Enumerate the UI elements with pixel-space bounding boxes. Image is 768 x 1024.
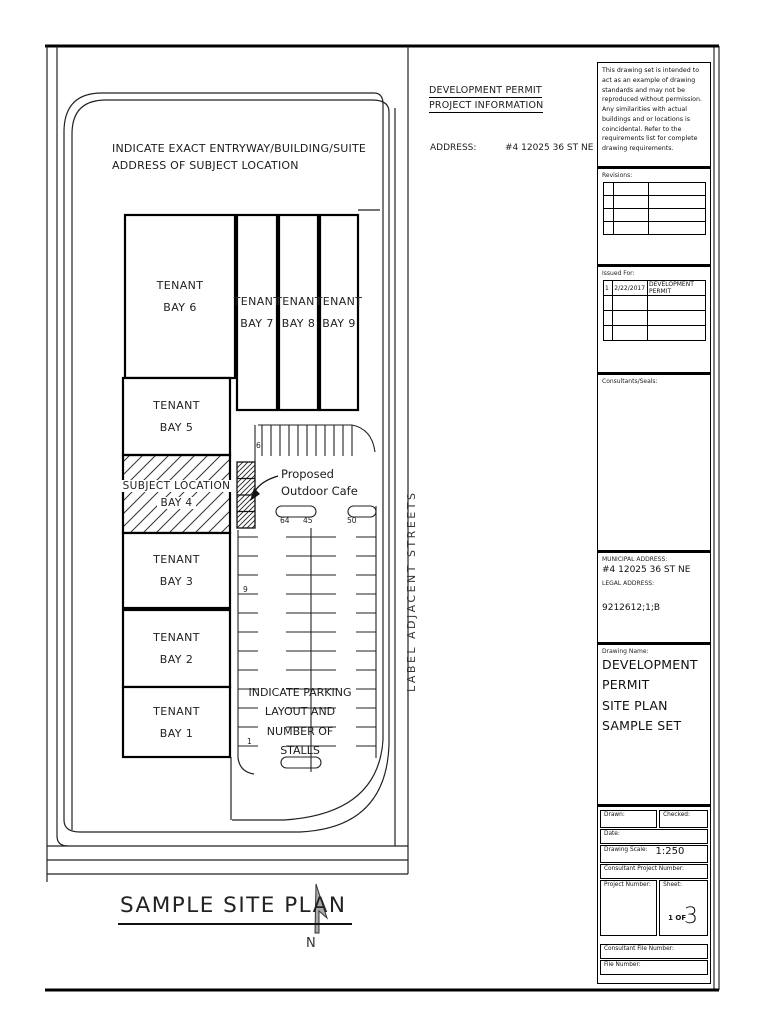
- drawing-sheet: INDICATE EXACT ENTRYWAY/BUILDING/SUITE A…: [0, 0, 768, 1024]
- table-row: [604, 222, 706, 235]
- stall-count-top: 6: [256, 441, 261, 450]
- drawing-name-line: SAMPLE SET: [602, 716, 706, 736]
- sheet-field: Sheet: 1 OF 3: [659, 880, 708, 936]
- title-block: This drawing set is intended to act as a…: [597, 62, 711, 984]
- drawing-name-label: Drawing Name:: [602, 648, 706, 655]
- north-label: N: [306, 936, 316, 951]
- revisions-label: Revisions:: [602, 172, 706, 179]
- table-row: [604, 196, 706, 209]
- bay-9-label: TENANTBAY 9: [320, 215, 358, 410]
- issued-for-table: 1 2/22/2017 DEVELOPMENT PERMIT: [603, 280, 706, 341]
- project-info-line1: DEVELOPMENT PERMIT: [429, 85, 542, 98]
- bay-8-label: TENANTBAY 8: [279, 215, 318, 410]
- consultant-file-number-field: Consultant File Number:: [600, 944, 708, 959]
- checked-field: Checked:: [659, 810, 708, 828]
- drawing-name-line: DEVELOPMENT PERMIT: [602, 655, 706, 696]
- issued-for-label: Issued For:: [602, 270, 706, 277]
- bay-6-label: TENANTBAY 6: [125, 215, 235, 378]
- issued-for-section: Issued For: 1 2/22/2017 DEVELOPMENT PERM…: [598, 267, 710, 375]
- table-row: [604, 209, 706, 222]
- stall-count-left-lower: 1: [247, 737, 252, 746]
- revisions-table: [603, 182, 706, 235]
- municipal-address-value: #4 12025 36 ST NE: [602, 565, 706, 575]
- entryway-note: INDICATE EXACT ENTRYWAY/BUILDING/SUITE A…: [112, 141, 380, 174]
- plan-title: SAMPLE SITE PLAN: [118, 893, 352, 925]
- table-row: [604, 183, 706, 196]
- legal-address-value: 9212612;1;B: [602, 603, 706, 613]
- date-field: Date:: [600, 829, 708, 844]
- adjacent-streets-label: LABEL ADJACENT STREETS: [405, 491, 418, 692]
- parking-note: INDICATE PARKING LAYOUT AND NUMBER OF ST…: [247, 683, 353, 760]
- stall-count-center-right: 45: [303, 516, 313, 525]
- revisions-section: Revisions:: [598, 169, 710, 267]
- project-info-line2: PROJECT INFORMATION: [429, 100, 543, 113]
- address-section: MUNICIPAL ADDRESS: #4 12025 36 ST NE LEG…: [598, 553, 710, 645]
- address-label: ADDRESS:: [430, 143, 476, 153]
- project-info-heading: DEVELOPMENT PERMIT PROJECT INFORMATION: [429, 85, 543, 115]
- table-row: [604, 326, 706, 341]
- stall-count-right: 50: [347, 516, 357, 525]
- bay-2-label: TENANTBAY 2: [123, 610, 230, 687]
- bay-1-label: TENANTBAY 1: [123, 687, 230, 757]
- stall-count-center-left: 64: [280, 516, 290, 525]
- project-number-field: Project Number:: [600, 880, 657, 936]
- bay-5-label: TENANTBAY 5: [123, 378, 230, 455]
- bay-7-label: TENANTBAY 7: [237, 215, 277, 410]
- consultants-section: Consultants/Seals:: [598, 375, 710, 553]
- file-number-field: File Number:: [600, 960, 708, 975]
- sheet-number: 3: [684, 904, 698, 929]
- sheet-label: Sheet:: [663, 882, 682, 888]
- table-row: 1 2/22/2017 DEVELOPMENT PERMIT: [604, 281, 706, 296]
- scale-field: Drawing Scale: 1:250: [600, 845, 708, 863]
- drawing-name-line: SITE PLAN: [602, 696, 706, 716]
- bay-3-label: TENANTBAY 3: [123, 533, 230, 608]
- fields-section: Drawn: Checked: Date: Drawing Scale: 1:2…: [598, 807, 710, 985]
- consultant-project-number-field: Consultant Project Number:: [600, 864, 708, 879]
- address-value: #4 12025 36 ST NE: [505, 143, 593, 153]
- consultants-label: Consultants/Seals:: [602, 378, 706, 385]
- stall-count-left-upper: 9: [243, 585, 248, 594]
- legal-address-label: LEGAL ADDRESS:: [602, 580, 706, 587]
- table-row: [604, 311, 706, 326]
- outdoor-cafe-label: Proposed Outdoor Cafe: [281, 466, 358, 499]
- subject-location-label: SUBJECT LOCATIONBAY 4: [123, 455, 230, 533]
- scale-label: Drawing Scale:: [604, 847, 648, 853]
- drawing-name-section: Drawing Name: DEVELOPMENT PERMIT SITE PL…: [598, 645, 710, 807]
- drawn-field: Drawn:: [600, 810, 657, 828]
- table-row: [604, 296, 706, 311]
- municipal-address-label: MUNICIPAL ADDRESS:: [602, 556, 706, 563]
- scale-value: 1:250: [656, 846, 685, 857]
- disclaimer-section: This drawing set is intended to act as a…: [598, 63, 710, 169]
